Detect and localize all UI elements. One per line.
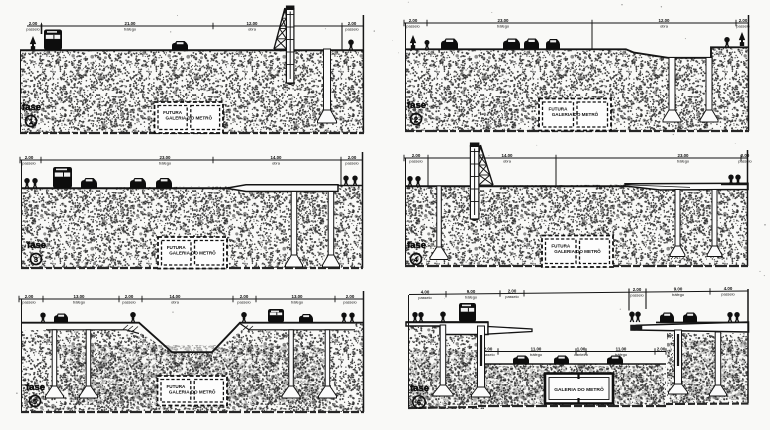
svg-text:FUTURA: FUTURA	[163, 110, 183, 115]
svg-text:2.00: 2.00	[739, 18, 748, 23]
svg-text:passeio: passeio	[22, 299, 35, 304]
svg-text:2.00: 2.00	[346, 294, 355, 299]
svg-text:passeio: passeio	[22, 160, 35, 165]
svg-text:tráfego: tráfego	[465, 294, 477, 299]
svg-text:3: 3	[34, 255, 38, 264]
svg-text:2.00: 2.00	[125, 294, 134, 299]
svg-text:2.00: 2.00	[25, 294, 34, 299]
svg-text:2.00: 2.00	[508, 289, 517, 294]
svg-text:passeio: passeio	[738, 158, 751, 163]
svg-text:tráfego: tráfego	[159, 160, 171, 165]
svg-text:passeio: passeio	[418, 295, 431, 300]
svg-text:4.00: 4.00	[421, 289, 430, 294]
svg-text:passeio: passeio	[721, 292, 734, 297]
svg-text:GALERIA DO METRÔ: GALERIA DO METRÔ	[169, 387, 216, 394]
svg-text:passeio: passeio	[26, 26, 39, 31]
svg-text:tráfego: tráfego	[677, 158, 689, 163]
svg-text:FUTURA: FUTURA	[166, 384, 186, 389]
svg-text:14.00: 14.00	[271, 155, 283, 160]
svg-text:canteiro: canteiro	[574, 352, 588, 357]
svg-text:obra: obra	[272, 160, 281, 165]
svg-text:2.00: 2.00	[348, 155, 357, 160]
svg-text:2.00: 2.00	[348, 21, 357, 26]
svg-text:21.00: 21.00	[125, 21, 137, 26]
svg-text:6: 6	[417, 398, 421, 407]
svg-text:GALERIA DO METRÔ: GALERIA DO METRÔ	[166, 113, 213, 120]
svg-text:9.00: 9.00	[674, 287, 683, 292]
svg-text:2.00: 2.00	[741, 153, 750, 158]
svg-text:9.00: 9.00	[467, 289, 476, 294]
svg-text:2.00: 2.00	[657, 346, 666, 351]
svg-text:1: 1	[29, 117, 33, 126]
svg-text:13.00: 13.00	[74, 294, 86, 299]
svg-text:fase: fase	[410, 383, 429, 394]
svg-text:1.00: 1.00	[577, 346, 586, 351]
svg-text:2: 2	[414, 115, 418, 124]
svg-text:tráfego: tráfego	[291, 299, 303, 304]
svg-text:obra: obra	[660, 23, 669, 28]
svg-text:2.00: 2.00	[412, 153, 421, 158]
svg-text:passeio: passeio	[736, 23, 749, 28]
svg-text:GALERIA DO METRÔ: GALERIA DO METRÔ	[552, 110, 599, 117]
svg-text:FUTURA: FUTURA	[167, 245, 187, 250]
svg-text:11.00: 11.00	[531, 346, 542, 351]
svg-text:2.00: 2.00	[25, 155, 34, 160]
svg-text:fase: fase	[407, 240, 426, 251]
svg-text:13.00: 13.00	[292, 294, 304, 299]
svg-text:2.00: 2.00	[484, 346, 493, 351]
svg-text:passeio: passeio	[122, 299, 135, 304]
svg-text:23.00: 23.00	[498, 18, 510, 23]
svg-text:FUTURA: FUTURA	[549, 106, 569, 111]
svg-text:tráfego: tráfego	[124, 26, 136, 31]
svg-text:GALERIA DO METRÔ: GALERIA DO METRÔ	[169, 248, 216, 255]
svg-text:FUTURA: FUTURA	[551, 243, 571, 248]
svg-text:12.00: 12.00	[247, 21, 259, 26]
svg-text:passeio: passeio	[630, 293, 643, 298]
svg-text:passeio: passeio	[345, 26, 358, 31]
svg-text:5: 5	[33, 397, 37, 406]
svg-text:GALERIA DO METRÔ: GALERIA DO METRÔ	[554, 247, 601, 254]
svg-text:obra: obra	[503, 158, 512, 163]
svg-text:11.00: 11.00	[616, 346, 627, 351]
svg-text:2.00: 2.00	[240, 294, 249, 299]
svg-text:tráfego: tráfego	[73, 299, 85, 304]
svg-text:2.00: 2.00	[29, 21, 38, 26]
svg-text:fase: fase	[22, 102, 41, 113]
svg-text:4.00: 4.00	[724, 286, 733, 291]
svg-text:2.00: 2.00	[409, 18, 418, 23]
svg-text:23.00: 23.00	[160, 155, 172, 160]
svg-text:passeio: passeio	[237, 299, 250, 304]
svg-text:passeio: passeio	[505, 294, 518, 299]
svg-text:passeio: passeio	[409, 158, 422, 163]
svg-text:23.00: 23.00	[678, 153, 690, 158]
svg-text:tráfego: tráfego	[497, 23, 509, 28]
svg-text:passeio: passeio	[345, 160, 358, 165]
svg-text:14.00: 14.00	[170, 294, 182, 299]
svg-text:obra: obra	[171, 299, 180, 304]
svg-text:passeio: passeio	[406, 23, 419, 28]
svg-text:12.00: 12.00	[659, 18, 671, 23]
svg-text:fase: fase	[26, 382, 45, 393]
svg-text:obra: obra	[248, 26, 257, 31]
svg-text:14.00: 14.00	[502, 153, 514, 158]
svg-text:fase: fase	[407, 100, 426, 111]
svg-text:fase: fase	[27, 240, 46, 251]
svg-text:tráfego: tráfego	[530, 352, 542, 357]
svg-text:tráfego: tráfego	[672, 292, 684, 297]
svg-text:passeio: passeio	[343, 299, 356, 304]
svg-text:2.00: 2.00	[633, 287, 642, 292]
